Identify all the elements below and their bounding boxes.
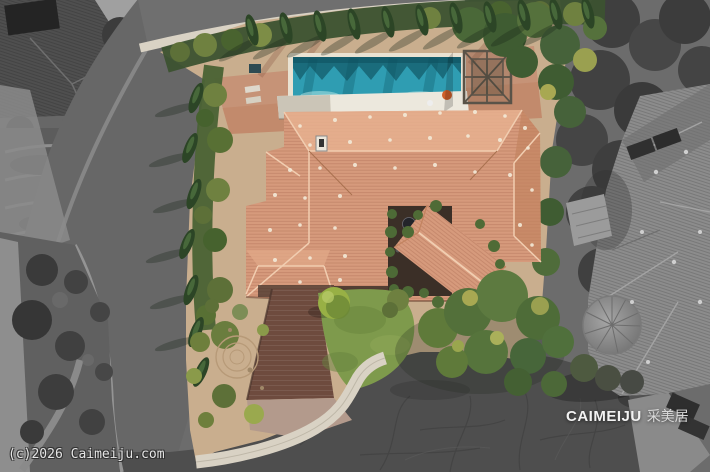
aerial-photo-stage: (c)2026 Caimeiju.com CAIMEIJU采美居 — [0, 0, 710, 472]
pool-equipment — [249, 64, 261, 73]
copyright-watermark: (c)2026 Caimeiju.com — [8, 447, 165, 462]
brand-watermark-latin: CAIMEIJU — [566, 408, 642, 425]
brand-watermark-cjk: 采美居 — [647, 409, 689, 425]
brand-watermark: CAIMEIJU采美居 — [566, 406, 689, 426]
aerial-photo — [0, 0, 710, 472]
